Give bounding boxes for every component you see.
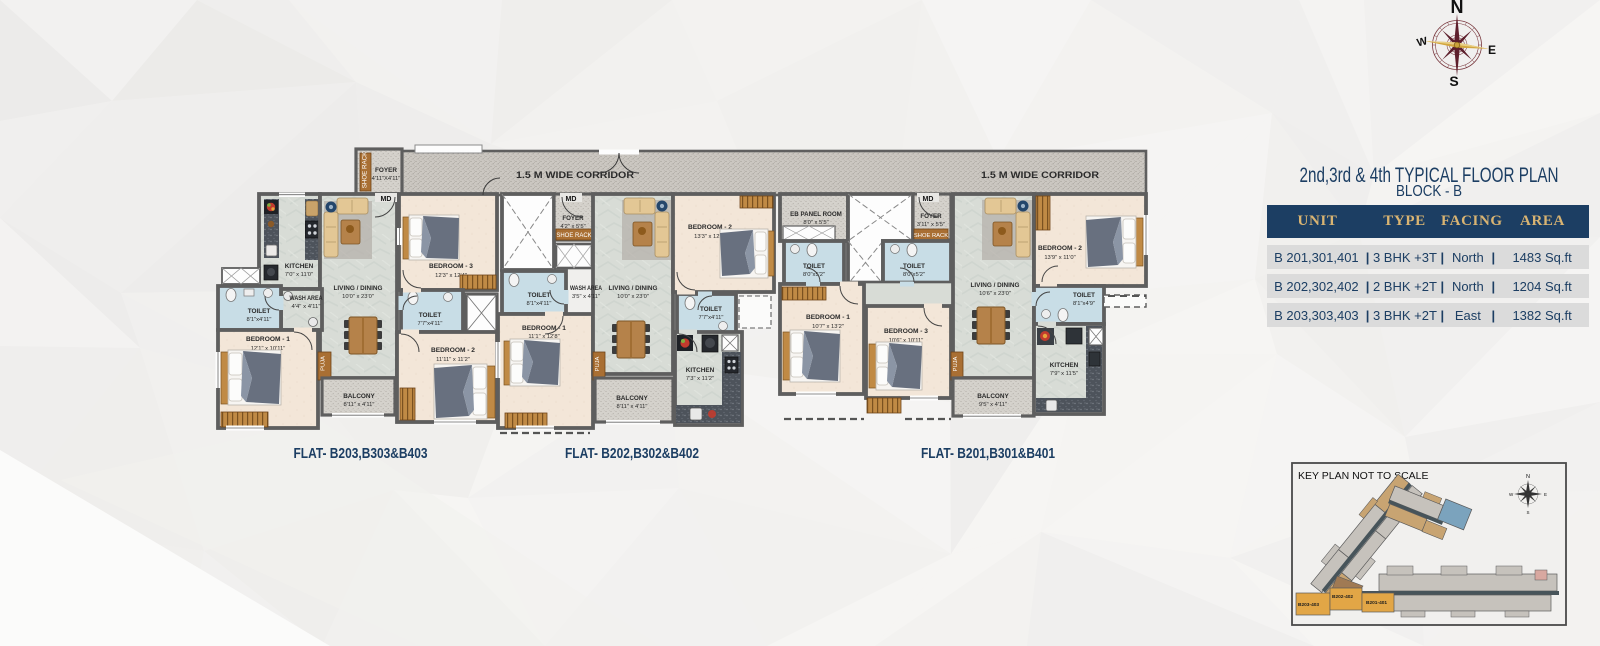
svg-text:1.5 M WIDE CORRIDOR: 1.5 M WIDE CORRIDOR xyxy=(981,170,1100,180)
svg-text:SHOE RACK: SHOE RACK xyxy=(556,233,591,239)
svg-text:1.5 M WIDE CORRIDOR: 1.5 M WIDE CORRIDOR xyxy=(516,170,635,180)
svg-text:N: N xyxy=(1451,0,1464,17)
svg-text:B202-402: B202-402 xyxy=(1332,594,1353,600)
svg-text:W: W xyxy=(1416,35,1430,49)
svg-text:TOILET: TOILET xyxy=(700,306,722,313)
svg-text:8'11" x 4'11": 8'11" x 4'11" xyxy=(617,404,648,410)
svg-text:BALCONY: BALCONY xyxy=(343,393,375,400)
svg-text:FOYER: FOYER xyxy=(375,167,397,174)
svg-text:E: E xyxy=(1544,492,1547,497)
svg-text:BLOCK - B: BLOCK - B xyxy=(1396,183,1462,200)
svg-text:MD: MD xyxy=(923,196,934,203)
svg-text:B201-401: B201-401 xyxy=(1366,600,1387,606)
svg-text:TOILET: TOILET xyxy=(419,312,442,319)
svg-text:7'7"x4'11": 7'7"x4'11" xyxy=(699,315,724,321)
svg-text:7'0" x 11'0": 7'0" x 11'0" xyxy=(285,272,313,278)
svg-text:WASH AREA: WASH AREA xyxy=(290,295,323,302)
svg-text:WASH AREA: WASH AREA xyxy=(570,285,603,292)
svg-text:KITCHEN: KITCHEN xyxy=(1050,362,1079,369)
svg-text:BEDROOM - 2: BEDROOM - 2 xyxy=(1038,245,1082,252)
svg-text:E: E xyxy=(1488,43,1496,57)
svg-text:FLAT- B203,B303&B403: FLAT- B203,B303&B403 xyxy=(294,446,428,462)
svg-text:FOYER: FOYER xyxy=(562,215,584,222)
svg-text:BEDROOM - 3: BEDROOM - 3 xyxy=(884,328,928,335)
svg-text:SHOE RACK: SHOE RACK xyxy=(914,233,948,239)
svg-text:LIVING / DINING: LIVING / DINING xyxy=(609,285,658,292)
svg-text:10'0" x 23'0": 10'0" x 23'0" xyxy=(617,294,649,300)
svg-text:TOILET: TOILET xyxy=(803,263,825,270)
svg-text:BEDROOM - 1: BEDROOM - 1 xyxy=(806,314,850,321)
svg-text:S: S xyxy=(1449,73,1458,89)
svg-text:10'0" x 23'0": 10'0" x 23'0" xyxy=(342,294,374,300)
svg-text:8'0" x 5'5": 8'0" x 5'5" xyxy=(803,220,828,226)
svg-text:BEDROOM - 2: BEDROOM - 2 xyxy=(431,347,475,354)
svg-text:8'11" x 4'11": 8'11" x 4'11" xyxy=(344,402,375,408)
svg-text:10'6" x 23'0": 10'6" x 23'0" xyxy=(979,291,1011,297)
svg-text:MD: MD xyxy=(566,196,577,203)
svg-text:7'7"x4'11": 7'7"x4'11" xyxy=(418,321,443,327)
svg-text:LIVING / DINING: LIVING / DINING xyxy=(971,282,1020,289)
svg-text:BALCONY: BALCONY xyxy=(616,395,648,402)
svg-text:10'7" x 13'2": 10'7" x 13'2" xyxy=(812,324,844,330)
svg-text:PUJA: PUJA xyxy=(953,356,959,371)
svg-text:EB PANEL ROOM: EB PANEL ROOM xyxy=(790,211,842,218)
svg-text:TOILET: TOILET xyxy=(528,292,551,299)
svg-text:13'9" x 11'0": 13'9" x 11'0" xyxy=(1044,255,1075,261)
svg-text:TOILET: TOILET xyxy=(248,308,271,315)
svg-text:KEY PLAN NOT TO SCALE: KEY PLAN NOT TO SCALE xyxy=(1298,470,1429,482)
svg-text:FLAT- B201,B301&B401: FLAT- B201,B301&B401 xyxy=(921,446,1055,462)
svg-text:8'0"x5'2": 8'0"x5'2" xyxy=(903,272,925,278)
svg-text:3'11" x 5'5": 3'11" x 5'5" xyxy=(917,222,945,228)
svg-text:4'11"X4'11": 4'11"X4'11" xyxy=(372,176,401,182)
svg-text:3'5" x 4'11": 3'5" x 4'11" xyxy=(572,294,600,300)
svg-text:PUJA: PUJA xyxy=(595,356,601,371)
svg-text:BEDROOM - 3: BEDROOM - 3 xyxy=(429,263,473,270)
svg-text:8'1"x4'9": 8'1"x4'9" xyxy=(1073,301,1095,307)
svg-text:TOILET: TOILET xyxy=(1073,292,1095,299)
svg-text:MD: MD xyxy=(381,196,392,203)
svg-text:SHOE RACK: SHOE RACK xyxy=(362,151,369,188)
svg-text:N: N xyxy=(1526,474,1530,480)
svg-text:8'0"x5'2": 8'0"x5'2" xyxy=(803,272,825,278)
svg-text:LIVING / DINING: LIVING / DINING xyxy=(334,285,383,292)
svg-text:KITCHEN: KITCHEN xyxy=(686,367,715,374)
svg-text:7'9" x 11'5": 7'9" x 11'5" xyxy=(1050,371,1078,377)
svg-text:BALCONY: BALCONY xyxy=(977,393,1009,400)
svg-text:FLAT- B202,B302&B402: FLAT- B202,B302&B402 xyxy=(565,446,699,462)
svg-text:7'3" x 11'2": 7'3" x 11'2" xyxy=(686,376,714,382)
svg-text:9'5" x 4'11": 9'5" x 4'11" xyxy=(979,402,1007,408)
svg-text:BEDROOM - 1: BEDROOM - 1 xyxy=(246,336,290,343)
svg-text:8'1"x4'11": 8'1"x4'11" xyxy=(527,301,552,307)
svg-text:S: S xyxy=(1526,510,1529,515)
svg-text:PUJA: PUJA xyxy=(321,356,327,371)
svg-text:11'11" x 11'2": 11'11" x 11'2" xyxy=(436,357,470,363)
svg-text:B203-403: B203-403 xyxy=(1298,602,1319,608)
svg-text:KITCHEN: KITCHEN xyxy=(285,263,314,270)
svg-text:4'4" x 4'11": 4'4" x 4'11" xyxy=(292,304,321,310)
svg-text:8'1"x4'11": 8'1"x4'11" xyxy=(247,317,272,323)
